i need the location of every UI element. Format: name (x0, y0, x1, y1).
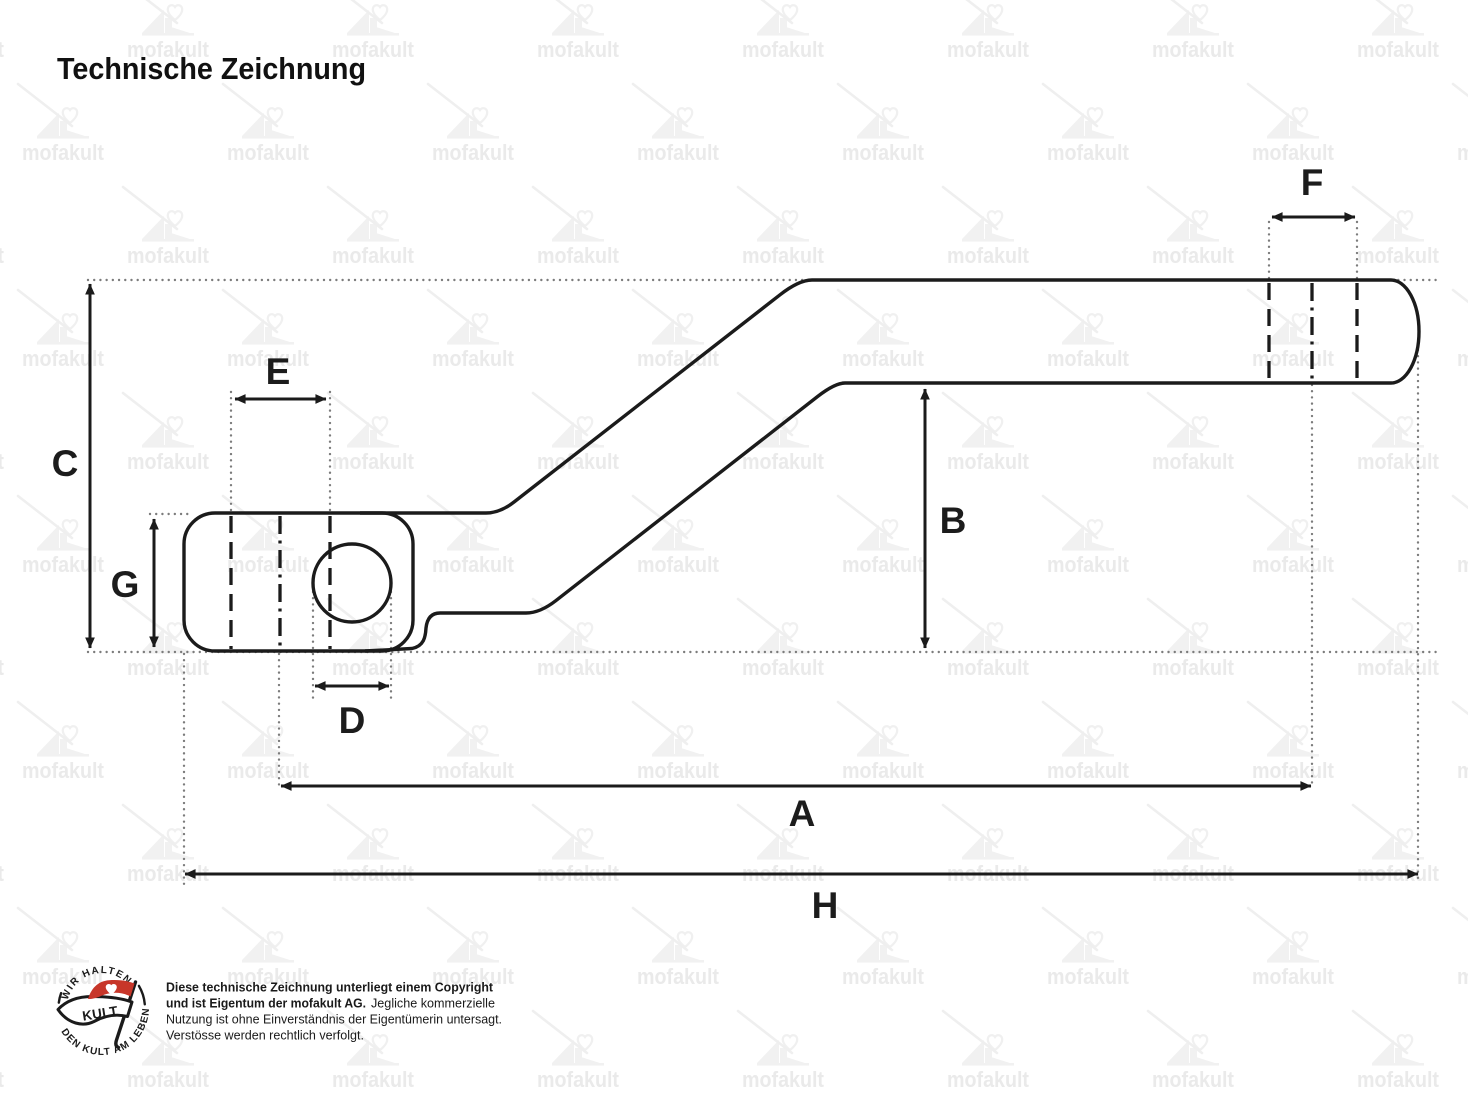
svg-text:D: D (339, 700, 366, 741)
svg-text:F: F (1301, 162, 1324, 203)
svg-text:Verstösse werden rechtlich ver: Verstösse werden rechtlich verfolgt. (166, 1027, 364, 1042)
svg-text:A: A (789, 793, 816, 834)
svg-text:und ist Eigentum der mofakult: und ist Eigentum der mofakult AG. (166, 995, 366, 1010)
svg-text:G: G (111, 564, 140, 605)
svg-text:C: C (52, 443, 79, 484)
svg-text:B: B (940, 500, 967, 541)
svg-text:Diese technische Zeichnung unt: Diese technische Zeichnung unterliegt ei… (166, 979, 494, 994)
svg-text:Technische Zeichnung: Technische Zeichnung (57, 51, 366, 86)
svg-text:Jegliche kommerzielle: Jegliche kommerzielle (371, 995, 495, 1010)
svg-text:Nutzung ist ohne Einverständni: Nutzung ist ohne Einverständnis der Eige… (166, 1011, 502, 1026)
svg-text:H: H (812, 885, 839, 926)
svg-text:E: E (266, 351, 291, 392)
